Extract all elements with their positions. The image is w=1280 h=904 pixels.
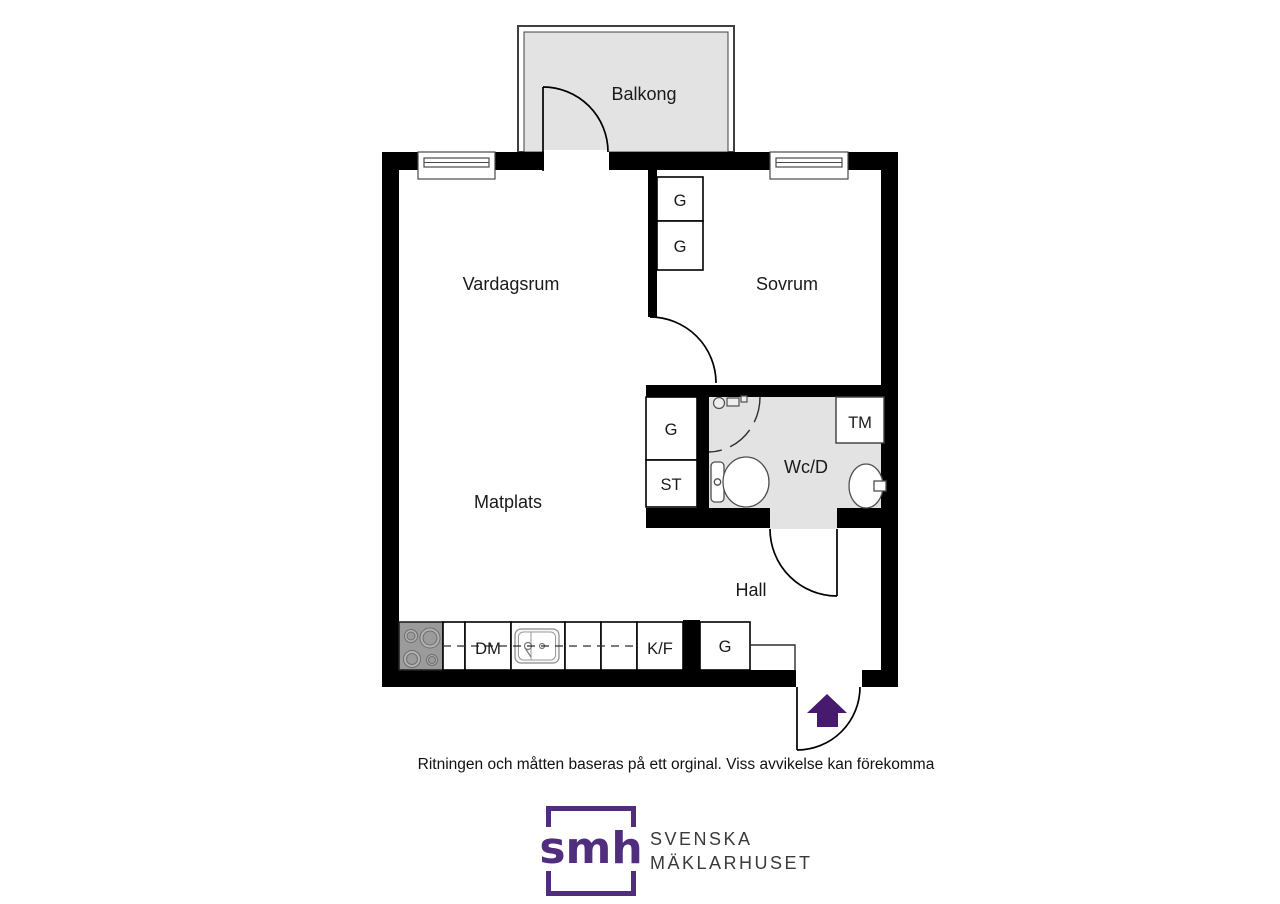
entry-arrow-icon [807, 694, 847, 727]
fridge-freezer-label: K/F [647, 640, 673, 658]
wall-living-bedroom [648, 168, 657, 317]
bathroom-label: Wc/D [784, 457, 828, 477]
closet-label: G [674, 238, 687, 256]
entrance-door-opening [796, 668, 862, 689]
closet-label: G [665, 421, 678, 439]
dining-label: Matplats [474, 492, 542, 512]
closet-label: ST [660, 476, 681, 494]
bedroom-label: Sovrum [756, 274, 818, 294]
washing-machine-label: TM [848, 414, 872, 432]
bathroom-door-arc [770, 529, 837, 596]
closet-label: G [719, 638, 732, 656]
toilet [711, 457, 769, 507]
dishwasher-label: DM [475, 640, 501, 658]
kitchen-sink-icon [515, 629, 559, 663]
floorplan-canvas: Balkong [0, 0, 1280, 904]
balcony-door-opening [544, 150, 609, 172]
logo-line1: SVENSKA [650, 827, 813, 851]
window-bedroom [770, 152, 848, 179]
closet-label: G [674, 192, 687, 210]
wall-kitchen-divider [683, 620, 700, 672]
disclaimer-text: Ritningen och måtten baseras på ett orgi… [376, 756, 976, 774]
balcony: Balkong [518, 26, 734, 152]
bedroom-door-arc [650, 317, 716, 383]
bathroom-door-threshold [770, 508, 837, 529]
hall-step-outline [750, 645, 795, 670]
wall-bathroom-bottom-left [646, 508, 770, 528]
wall-bedroom-bathroom [646, 385, 898, 397]
smh-logo-icon: smh [546, 806, 636, 896]
logo-wordmark: SVENSKA MÄKLARHUSET [650, 806, 813, 875]
logo-line2: MÄKLARHUSET [650, 851, 813, 875]
hall-label: Hall [735, 580, 766, 600]
balcony-label: Balkong [611, 84, 676, 104]
logo-monogram: smh [537, 827, 644, 871]
wall-bathroom-bottom-right [837, 508, 881, 528]
window-living-room [418, 152, 495, 179]
living-room-label: Vardagsrum [463, 274, 560, 294]
outer-wall-left [382, 152, 399, 687]
washing-machine: TM [836, 397, 884, 443]
brand-logo: smh SVENSKA MÄKLARHUSET [546, 806, 813, 896]
